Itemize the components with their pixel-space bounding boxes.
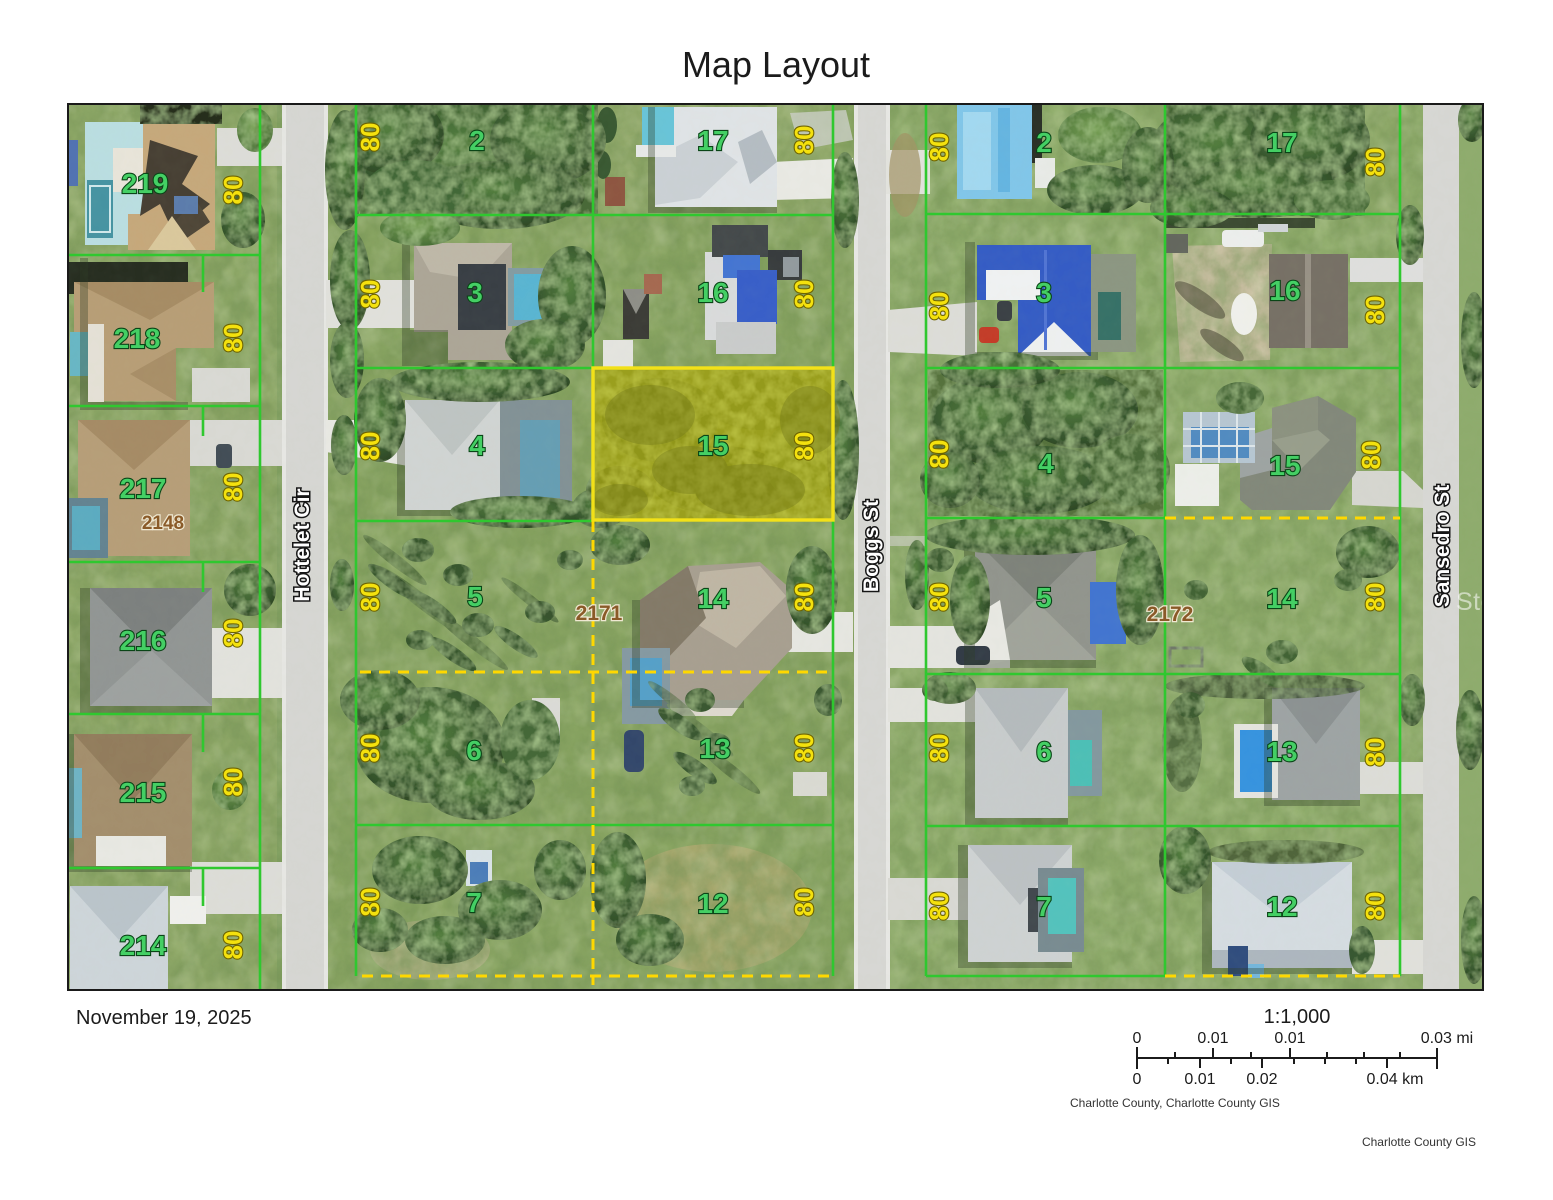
svg-text:13: 13 <box>699 733 730 764</box>
svg-text:218: 218 <box>114 323 161 354</box>
svg-text:Charlotte County GIS: Charlotte County GIS <box>1362 1135 1476 1149</box>
svg-text:0.01: 0.01 <box>1184 1071 1215 1088</box>
svg-text:80: 80 <box>789 583 819 612</box>
svg-text:0.04 km: 0.04 km <box>1367 1071 1424 1088</box>
svg-text:12: 12 <box>697 888 728 919</box>
svg-text:Sansedro St: Sansedro St <box>1431 485 1454 608</box>
svg-text:2: 2 <box>469 125 485 156</box>
svg-text:4: 4 <box>469 430 485 461</box>
svg-text:80: 80 <box>924 292 954 321</box>
svg-text:Map Layout: Map Layout <box>682 44 870 85</box>
svg-text:80: 80 <box>218 324 248 353</box>
svg-text:219: 219 <box>122 168 169 199</box>
svg-text:Hottelet Cir: Hottelet Cir <box>291 488 314 601</box>
svg-text:215: 215 <box>120 777 167 808</box>
svg-text:80: 80 <box>355 734 385 763</box>
svg-text:80: 80 <box>218 619 248 648</box>
svg-text:17: 17 <box>1266 127 1297 158</box>
svg-text:Boggs St: Boggs St <box>860 500 883 592</box>
svg-text:7: 7 <box>1036 891 1052 922</box>
svg-text:80: 80 <box>789 432 819 461</box>
svg-text:November 19, 2025: November 19, 2025 <box>76 1007 252 1029</box>
svg-text:80: 80 <box>789 888 819 917</box>
svg-text:16: 16 <box>697 277 728 308</box>
svg-text:80: 80 <box>1360 892 1390 921</box>
svg-text:80: 80 <box>1360 583 1390 612</box>
svg-text:15: 15 <box>697 430 728 461</box>
svg-text:80: 80 <box>355 432 385 461</box>
svg-text:216: 216 <box>120 625 167 656</box>
svg-text:14: 14 <box>1266 583 1298 614</box>
svg-text:80: 80 <box>1360 296 1390 325</box>
svg-text:12: 12 <box>1266 891 1297 922</box>
svg-text:80: 80 <box>355 280 385 309</box>
svg-text:4: 4 <box>1038 448 1054 479</box>
svg-text:6: 6 <box>466 735 482 766</box>
svg-text:80: 80 <box>1360 148 1390 177</box>
svg-text:1:1,000: 1:1,000 <box>1264 1006 1331 1028</box>
svg-text:80: 80 <box>355 123 385 152</box>
svg-text:80: 80 <box>1360 738 1390 767</box>
svg-text:80: 80 <box>789 280 819 309</box>
svg-text:80: 80 <box>789 734 819 763</box>
svg-text:16: 16 <box>1269 275 1300 306</box>
svg-text:2: 2 <box>1036 127 1052 158</box>
svg-text:2172: 2172 <box>1147 603 1194 626</box>
svg-text:StellarMLS: StellarMLS <box>1456 588 1553 616</box>
svg-text:13: 13 <box>1266 736 1297 767</box>
svg-text:80: 80 <box>218 176 248 205</box>
svg-text:15: 15 <box>1269 450 1300 481</box>
svg-text:0: 0 <box>1133 1030 1142 1047</box>
svg-text:0.03 mi: 0.03 mi <box>1421 1030 1473 1047</box>
svg-text:2171: 2171 <box>576 602 623 625</box>
svg-text:80: 80 <box>924 440 954 469</box>
svg-text:5: 5 <box>1036 582 1052 613</box>
svg-text:6: 6 <box>1036 736 1052 767</box>
svg-text:3: 3 <box>1036 277 1052 308</box>
svg-text:214: 214 <box>120 930 167 961</box>
svg-text:80: 80 <box>1356 441 1386 470</box>
svg-text:0: 0 <box>1133 1071 1142 1088</box>
svg-text:3: 3 <box>467 277 483 308</box>
svg-text:0.01: 0.01 <box>1197 1030 1228 1047</box>
svg-text:80: 80 <box>924 892 954 921</box>
svg-text:80: 80 <box>789 126 819 155</box>
svg-text:80: 80 <box>218 768 248 797</box>
svg-text:217: 217 <box>120 473 167 504</box>
svg-text:80: 80 <box>924 133 954 162</box>
svg-text:14: 14 <box>697 583 729 614</box>
svg-text:80: 80 <box>218 931 248 960</box>
svg-text:80: 80 <box>924 583 954 612</box>
svg-text:17: 17 <box>697 125 728 156</box>
svg-text:80: 80 <box>355 888 385 917</box>
svg-text:5: 5 <box>467 581 483 612</box>
svg-text:Charlotte County, Charlotte Co: Charlotte County, Charlotte County GIS <box>1070 1096 1280 1110</box>
svg-text:7: 7 <box>466 887 482 918</box>
svg-text:0.01: 0.01 <box>1274 1030 1305 1047</box>
svg-text:2148: 2148 <box>142 513 184 534</box>
svg-text:80: 80 <box>924 734 954 763</box>
svg-text:80: 80 <box>218 473 248 502</box>
svg-text:80: 80 <box>355 583 385 612</box>
svg-text:0.02: 0.02 <box>1246 1071 1277 1088</box>
